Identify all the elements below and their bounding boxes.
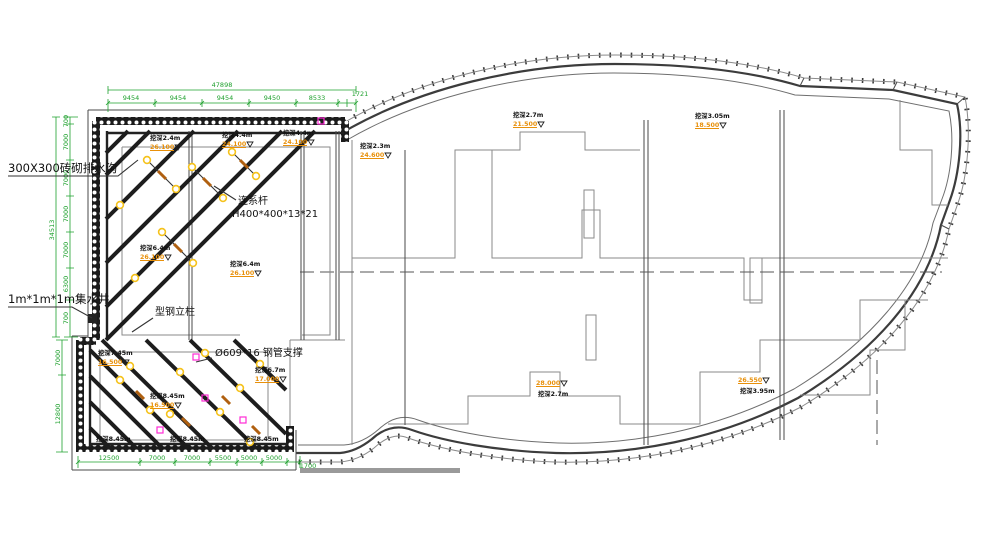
- hull-region: [296, 55, 968, 473]
- elevation-triangle-icon: [763, 378, 769, 383]
- elevation-triangle-icon: [255, 271, 261, 276]
- dim-left-lower-seg-2: 12800: [54, 404, 62, 425]
- elevation-triangle-icon: [280, 377, 286, 382]
- marker-elev: 26.100: [150, 144, 175, 151]
- marker-elev: 17.000: [255, 376, 280, 383]
- elevation-triangle-icon: [720, 123, 726, 128]
- elevation-triangle-icon: [175, 403, 181, 408]
- marker-depth: 挖深8.45m: [150, 391, 185, 400]
- elevation-marker: 挖深6.4m 26.100: [140, 243, 171, 261]
- bottom-depth-label: 挖深8.45m: [170, 434, 205, 443]
- marker-depth: 挖深2.4m: [150, 133, 181, 142]
- elevation-marker: 挖深3.05m 18.500: [695, 111, 730, 129]
- elevation-marker: 挖深6.4m 26.100: [230, 259, 261, 277]
- elevation-marker: 挖深2.3m 24.600: [360, 141, 391, 159]
- elevation-marker: 28.000 挖深2.7m: [536, 380, 569, 398]
- marker-elev: 26.100: [140, 254, 165, 261]
- dim-bottom-seg-4: 5500: [215, 454, 232, 462]
- dim-left-seg-7: 700: [62, 312, 70, 324]
- dim-top-seg-2: 9454: [170, 94, 187, 102]
- elevation-triangle-icon: [247, 142, 253, 147]
- hull-outer-line: [296, 55, 968, 462]
- dim-left-seg-2: 7000: [62, 134, 70, 151]
- tie-rod-label-line1: 连系杆: [238, 194, 268, 207]
- elevation-marker: 挖深8.45m 16.500: [150, 391, 185, 409]
- dim-left-lower-seg-1: 7000: [54, 350, 62, 367]
- marker-depth: 挖深4.4m: [283, 128, 314, 137]
- dim-left-total: 34513: [48, 220, 56, 241]
- marker-elev: 26.550: [738, 377, 763, 384]
- bottom-depth-label: 挖深8.45m: [96, 434, 131, 443]
- elevation-triangle-icon: [165, 255, 171, 260]
- dim-top-seg-6: 1721: [352, 90, 369, 98]
- bottom-depth-label: 挖深8.45m: [244, 434, 279, 443]
- dim-bottom-seg-7: 1700: [300, 462, 317, 470]
- tie-rod-label-line2: H400*400*13*21: [232, 209, 318, 220]
- hull-inner-line: [298, 73, 952, 445]
- marker-elev: 26.100: [230, 270, 255, 277]
- marker-depth: 挖深2.3m: [360, 141, 391, 150]
- marker-depth: 挖深6.7m: [255, 365, 286, 374]
- pit-waler-lines: [90, 131, 344, 447]
- pipe-support-label: Ø609*16 钢管支撑: [215, 346, 303, 359]
- dim-bottom-seg-2: 7000: [149, 454, 166, 462]
- dim-bottom-seg-5: 5000: [241, 454, 258, 462]
- marker-elev: 16.500: [98, 359, 123, 366]
- dim-left-seg-6: 6300: [62, 276, 70, 293]
- marker-depth: 挖深2.7m: [513, 110, 544, 119]
- marker-elev: 24.600: [360, 152, 385, 159]
- marker-elev: 21.500: [513, 121, 538, 128]
- marker-depth: 挖深6.4m: [140, 243, 171, 252]
- dim-top-seg-5: 8533: [309, 94, 326, 102]
- cad-drawing-canvas: 47898 9454 9454 9454 9450 8533 1721 3451…: [0, 0, 985, 557]
- elevation-marker: 挖深4.4m 24.100: [222, 130, 253, 148]
- marker-elev: 28.000: [536, 380, 561, 387]
- sump-pit-label: 1m*1m*1m集水井: [8, 292, 110, 306]
- marker-depth: 挖深7.45m: [98, 348, 133, 357]
- dim-bottom-seg-1: 12500: [99, 454, 120, 462]
- sump-pit-leader: [8, 307, 92, 318]
- steel-column-label: 型钢立柱: [155, 305, 195, 318]
- dim-left-seg-5: 7000: [62, 242, 70, 259]
- dim-bottom-seg-3: 7000: [184, 454, 201, 462]
- dim-left-seg-4: 7000: [62, 206, 70, 223]
- pit-pile-wall: [80, 121, 345, 452]
- elevation-triangle-icon: [561, 381, 567, 386]
- elevation-marker: 挖深2.7m 21.500: [513, 110, 544, 128]
- dim-top-seg-4: 9450: [264, 94, 281, 102]
- dim-bottom-seg-6: 5000: [266, 454, 283, 462]
- elevation-triangle-icon: [385, 153, 391, 158]
- marker-depth: 挖深6.4m: [230, 259, 261, 268]
- steel-column-leader: [132, 318, 153, 332]
- dim-top-seg-1: 9454: [123, 94, 140, 102]
- bottom-depth-labels: 挖深8.45m 挖深8.45m 挖深8.45m: [96, 434, 279, 443]
- elevation-triangle-icon: [308, 140, 314, 145]
- marker-elev: 24.100: [283, 139, 308, 146]
- drain-channel-label: 300X300砖砌排水沟: [8, 161, 117, 175]
- marker-depth: 挖深3.05m: [695, 111, 730, 120]
- elevation-triangle-icon: [538, 122, 544, 127]
- sump-pit-symbol: [88, 314, 97, 323]
- marker-depth: 挖深2.7m: [538, 389, 569, 398]
- elevation-marker: 26.550 挖深3.95m: [738, 377, 775, 395]
- marker-depth: 挖深3.95m: [740, 386, 775, 395]
- marker-elev: 16.500: [150, 402, 175, 409]
- elevation-markers: 挖深2.4m 26.100 挖深4.4m 24.100 挖深4.4m 24.10…: [98, 110, 775, 409]
- marker-elev: 24.100: [222, 141, 247, 148]
- pipe-braces-upper: [106, 131, 315, 340]
- dim-left-seg-1: 700: [62, 115, 70, 127]
- hull-outer-hatch: [296, 55, 968, 462]
- hull-bottom-shadow-bar: [300, 468, 460, 473]
- dim-top-seg-3: 9454: [217, 94, 234, 102]
- dim-top-total: 47898: [212, 81, 233, 89]
- marker-depth: 挖深4.4m: [222, 130, 253, 139]
- excavation-support-plan: 47898 9454 9454 9454 9450 8533 1721 3451…: [0, 0, 985, 557]
- marker-elev: 18.500: [695, 122, 720, 129]
